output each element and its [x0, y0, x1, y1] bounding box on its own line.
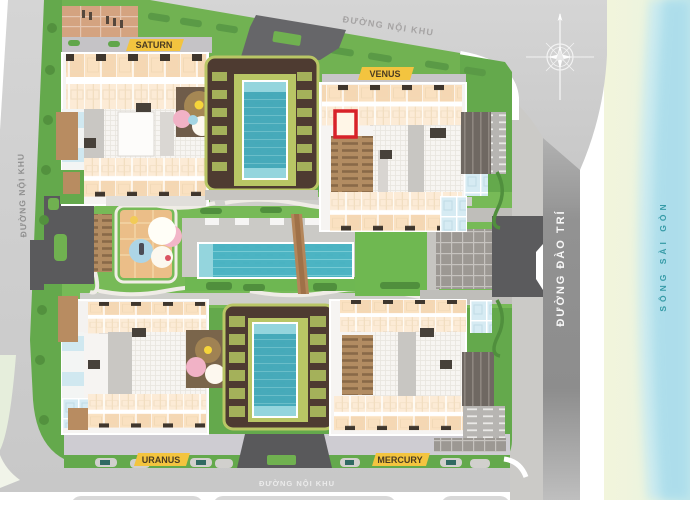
svg-text:ĐƯỜNG ĐÀO TRÍ: ĐƯỜNG ĐÀO TRÍ: [554, 209, 567, 326]
svg-text:ĐƯỜNG NỘI KHU: ĐƯỜNG NỘI KHU: [259, 479, 335, 488]
svg-text:SATURN: SATURN: [136, 40, 173, 50]
svg-text:URANUS: URANUS: [142, 455, 181, 465]
svg-text:MERCURY: MERCURY: [377, 455, 422, 465]
svg-text:SÔNG SÀI GÒN: SÔNG SÀI GÒN: [657, 200, 668, 311]
svg-text:VENUS: VENUS: [369, 69, 400, 79]
